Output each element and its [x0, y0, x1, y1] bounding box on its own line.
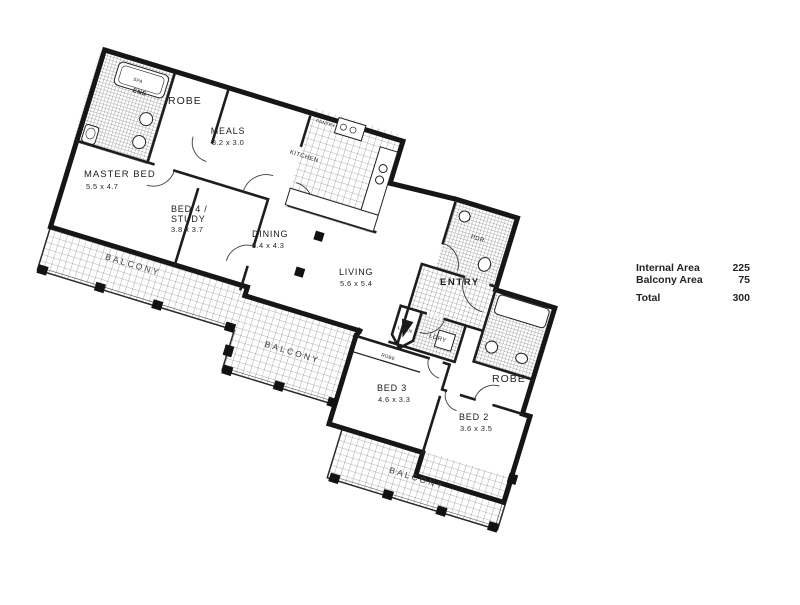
room-dims-bed3: 4.6 x 3.3 [378, 395, 410, 404]
room-label-living: LIVING [339, 267, 373, 277]
area-value-total: 300 [732, 293, 750, 305]
room-label-bed3: BED 3 [377, 383, 407, 393]
room-label-bed4-line2: STUDY [171, 214, 206, 224]
room-label-robe-master: ROBE [168, 95, 202, 107]
room-dims-bed4: 3.8 x 3.7 [171, 225, 203, 234]
area-row-balcony: Balcony Area 75 [636, 275, 750, 287]
room-label-meals: MEALS [211, 126, 246, 136]
area-label-total: Total [636, 293, 660, 305]
room-label-master-bed: MASTER BED [84, 169, 156, 180]
area-value-internal: 225 [732, 263, 750, 275]
column [294, 267, 305, 278]
room-label-bed2: BED 2 [459, 412, 489, 422]
room-label-bed4-line1: BED 4 / [171, 204, 208, 214]
area-label-internal: Internal Area [636, 263, 700, 275]
room-label-robe-bed2: ROBE [492, 373, 526, 385]
room-dims-bed2: 3.6 x 3.5 [460, 424, 492, 433]
area-row-total: Total 300 [636, 293, 750, 305]
floor-plan-page: ENS SPA KITCHEN PANTRY PDR LDRY LINEN RO… [0, 0, 800, 600]
room-label-robe-bed3: ROBE [381, 352, 396, 361]
room-label-entry: ENTRY [440, 277, 480, 288]
area-table: Internal Area 225 Balcony Area 75 Total … [636, 263, 750, 305]
building-rotated-group: ENS SPA KITCHEN PANTRY PDR LDRY LINEN RO… [0, 43, 604, 534]
area-row-internal: Internal Area 225 [636, 263, 750, 275]
column [313, 231, 324, 242]
room-dims-dining: 5.4 x 4.3 [252, 241, 284, 250]
room-dims-master-bed: 5.5 x 4.7 [86, 182, 118, 191]
room-dims-meals: 3.2 x 3.0 [212, 138, 244, 147]
area-label-balcony: Balcony Area [636, 275, 703, 287]
room-dims-living: 5.6 x 5.4 [340, 279, 372, 288]
area-value-balcony: 75 [738, 275, 750, 287]
room-label-dining: DINING [252, 229, 288, 239]
